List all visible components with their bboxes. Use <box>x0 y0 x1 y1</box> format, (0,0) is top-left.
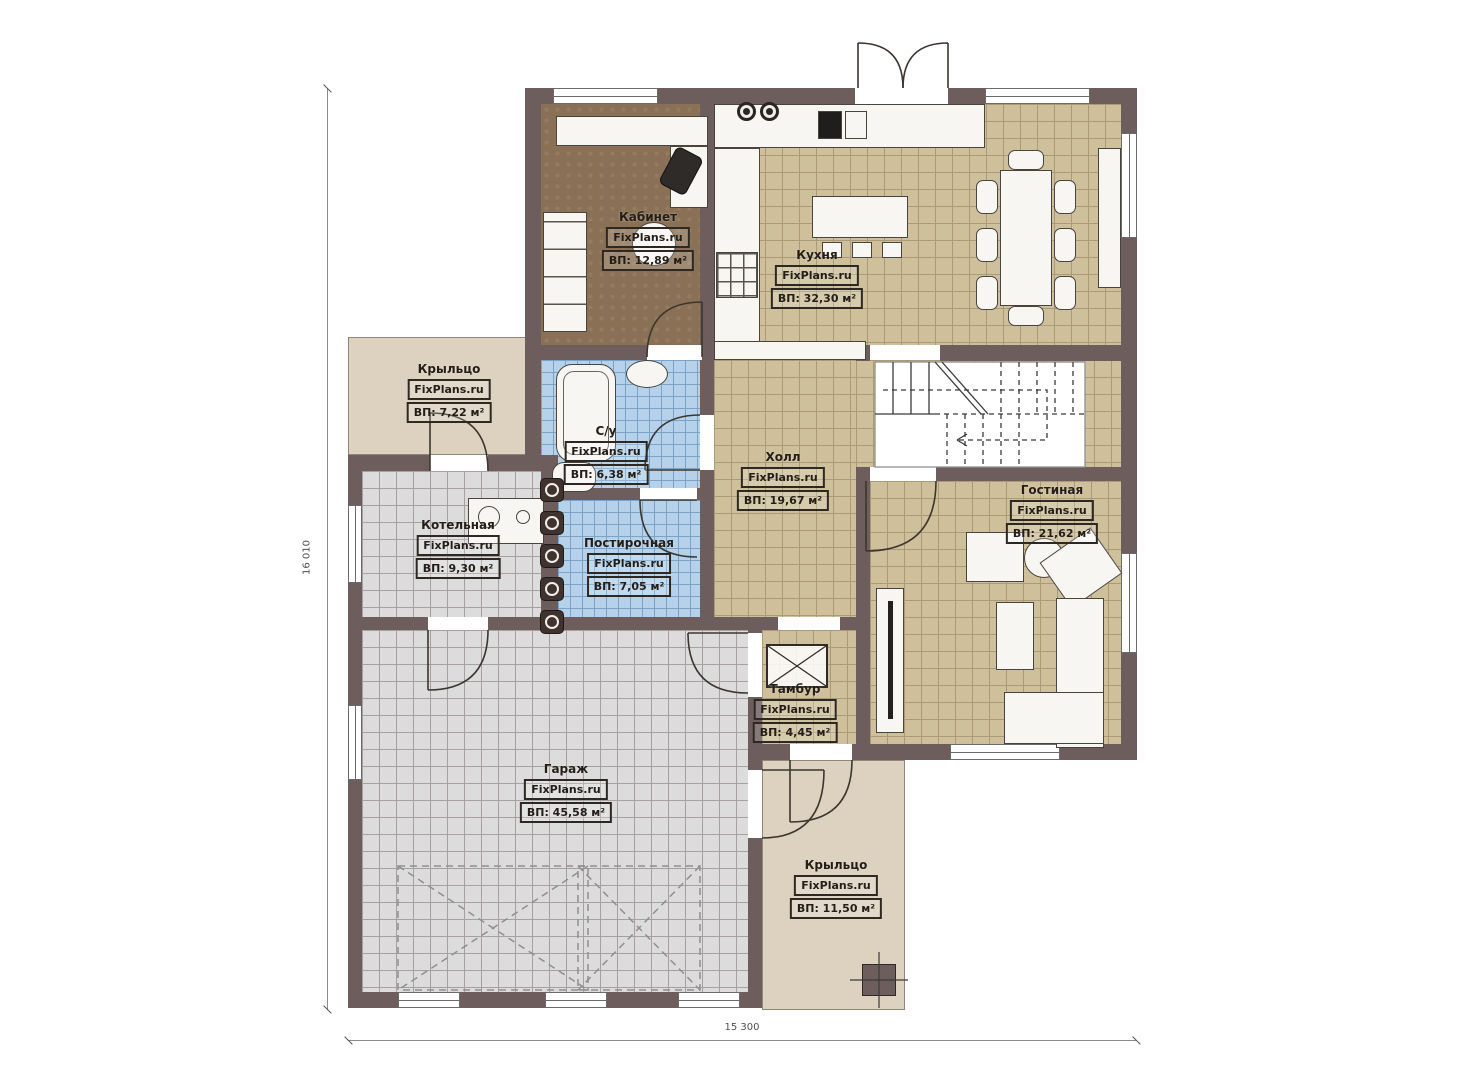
wall-segment <box>525 88 541 470</box>
room-label-su: С/у FixPlans.ru ВП: 6,38 м² <box>564 424 649 485</box>
wall-segment <box>840 617 856 630</box>
kitchen-sink-unit <box>818 111 842 139</box>
wall-segment <box>702 345 714 360</box>
office-desk <box>556 116 708 146</box>
dining-chair <box>1054 180 1076 214</box>
area-box: ВП: 6,38 м² <box>564 464 649 485</box>
radiator-manifold <box>540 511 564 535</box>
wall-segment <box>700 360 714 415</box>
dining-table <box>1000 170 1052 306</box>
brand-box: FixPlans.ru <box>741 467 824 488</box>
area-box: ВП: 45,58 м² <box>520 802 612 823</box>
area-box: ВП: 11,50 м² <box>790 898 882 919</box>
wall-segment <box>348 583 362 705</box>
room-name: Крыльцо <box>805 858 868 872</box>
window <box>678 992 740 1008</box>
radiator-manifold <box>540 610 564 634</box>
radiator-manifold <box>540 544 564 568</box>
wall-segment <box>700 500 714 617</box>
room-name: С/у <box>595 424 616 438</box>
room-name: Гостиная <box>1021 483 1083 497</box>
dining-chair <box>976 180 998 214</box>
wall-segment <box>348 992 398 1008</box>
dimension-label-left: 16 010 <box>302 523 313 593</box>
radiator-manifold <box>540 478 564 502</box>
room-name: Кабинет <box>619 210 677 224</box>
wall-segment <box>460 992 545 1008</box>
office-bookcase <box>543 212 587 332</box>
room-label-kryltso-bottom: Крыльцо FixPlans.ru ВП: 11,50 м² <box>790 858 882 919</box>
wall-segment <box>525 345 647 360</box>
window <box>985 88 1090 104</box>
wall-segment <box>852 744 950 760</box>
tv-screen <box>888 601 893 719</box>
wall-segment <box>348 780 362 992</box>
room-label-kuhnya: Кухня FixPlans.ru ВП: 32,30 м² <box>771 248 863 309</box>
wall-segment <box>948 88 985 104</box>
dimension-label-bottom: 15 300 <box>702 1022 782 1033</box>
wall-segment <box>488 617 778 630</box>
dining-chair <box>1008 150 1044 170</box>
room-name: Холл <box>765 450 800 464</box>
area-box: ВП: 19,67 м² <box>737 490 829 511</box>
kitchen-bar-opening <box>714 341 866 360</box>
bathroom-sink <box>626 360 668 388</box>
dining-chair <box>1008 306 1044 326</box>
area-box: ВП: 4,45 м² <box>753 722 838 743</box>
wall-segment <box>856 467 870 744</box>
room-name: Крыльцо <box>418 362 481 376</box>
room-label-kotelnaya: Котельная FixPlans.ru ВП: 9,30 м² <box>416 518 501 579</box>
room-label-holl: Холл FixPlans.ru ВП: 19,67 м² <box>737 450 829 511</box>
room-label-garazh: Гараж FixPlans.ru ВП: 45,58 м² <box>520 762 612 823</box>
room-name: Кухня <box>796 248 837 262</box>
window <box>398 992 460 1008</box>
window <box>950 744 1060 760</box>
brand-box: FixPlans.ru <box>794 875 877 896</box>
kitchen-island <box>812 196 908 238</box>
window <box>553 88 658 104</box>
wall-segment <box>607 992 678 1008</box>
kitchen-counter-left <box>714 148 760 345</box>
area-box: ВП: 32,30 м² <box>771 288 863 309</box>
wall-segment <box>348 455 362 505</box>
wall-segment <box>697 488 714 500</box>
brand-box: FixPlans.ru <box>606 227 689 248</box>
wall-segment <box>748 838 762 992</box>
area-box: ВП: 12,89 м² <box>602 250 694 271</box>
brand-box: FixPlans.ru <box>753 699 836 720</box>
sofa-seat <box>1004 692 1104 744</box>
wall-segment <box>1121 88 1137 133</box>
floor-plan-canvas: Кабинет FixPlans.ru ВП: 12,89 м² Кухня F… <box>0 0 1473 1080</box>
brand-box: FixPlans.ru <box>587 553 670 574</box>
coffee-table <box>996 602 1034 670</box>
area-box: ВП: 21,62 м² <box>1006 523 1098 544</box>
room-label-tambur: Тамбур FixPlans.ru ВП: 4,45 м² <box>753 682 838 743</box>
window <box>1121 553 1137 653</box>
window <box>1121 133 1137 238</box>
window <box>348 505 362 583</box>
dining-chair <box>976 228 998 262</box>
brand-box: FixPlans.ru <box>407 379 490 400</box>
area-box: ВП: 9,30 м² <box>416 558 501 579</box>
room-label-kabinet: Кабинет FixPlans.ru ВП: 12,89 м² <box>602 210 694 271</box>
door-opening <box>430 455 488 471</box>
wall-segment <box>940 345 1137 361</box>
door-opening <box>647 345 702 360</box>
porch-column <box>862 964 896 996</box>
room-label-kryltso-left: Крыльцо FixPlans.ru ВП: 7,22 м² <box>407 362 492 423</box>
dining-chair <box>1054 276 1076 310</box>
wall-segment <box>740 992 762 1008</box>
door-opening <box>778 617 840 630</box>
area-box: ВП: 7,05 м² <box>587 576 672 597</box>
window <box>348 705 362 780</box>
wall-segment <box>658 88 855 104</box>
boiler-knob <box>516 510 530 524</box>
brand-box: FixPlans.ru <box>775 265 858 286</box>
dimension-line-bottom <box>348 1040 1137 1041</box>
cooktop-burner <box>737 102 756 121</box>
entrance-opening <box>855 88 948 104</box>
door-opening <box>790 744 852 760</box>
wall-segment <box>936 467 1137 481</box>
room-name: Котельная <box>421 518 495 532</box>
brand-box: FixPlans.ru <box>1010 500 1093 521</box>
brand-box: FixPlans.ru <box>524 779 607 800</box>
radiator-manifold <box>540 577 564 601</box>
cooktop-burner <box>760 102 779 121</box>
room-name: Тамбур <box>770 682 821 696</box>
kitchen-oven <box>716 252 758 298</box>
wall-segment <box>348 617 428 630</box>
dining-chair <box>976 276 998 310</box>
room-label-gostinaya: Гостиная FixPlans.ru ВП: 21,62 м² <box>1006 483 1098 544</box>
window <box>545 992 607 1008</box>
dimension-line-left <box>327 88 328 1010</box>
brand-box: FixPlans.ru <box>416 535 499 556</box>
room-name: Постирочная <box>584 536 674 550</box>
dining-chair <box>1054 228 1076 262</box>
floor-stair-underlay <box>856 360 1121 467</box>
wall-segment <box>856 467 866 481</box>
kitchen-sink-basin <box>845 111 867 139</box>
tv-stand <box>876 588 904 733</box>
door-opening <box>748 770 762 838</box>
room-label-postirochnaya: Постирочная FixPlans.ru ВП: 7,05 м² <box>584 536 674 597</box>
brand-box: FixPlans.ru <box>564 441 647 462</box>
wall-segment <box>1121 238 1137 553</box>
kitchen-stool <box>882 242 902 258</box>
room-name: Гараж <box>544 762 588 776</box>
kitchen-sideboard <box>1098 148 1121 288</box>
area-box: ВП: 7,22 м² <box>407 402 492 423</box>
